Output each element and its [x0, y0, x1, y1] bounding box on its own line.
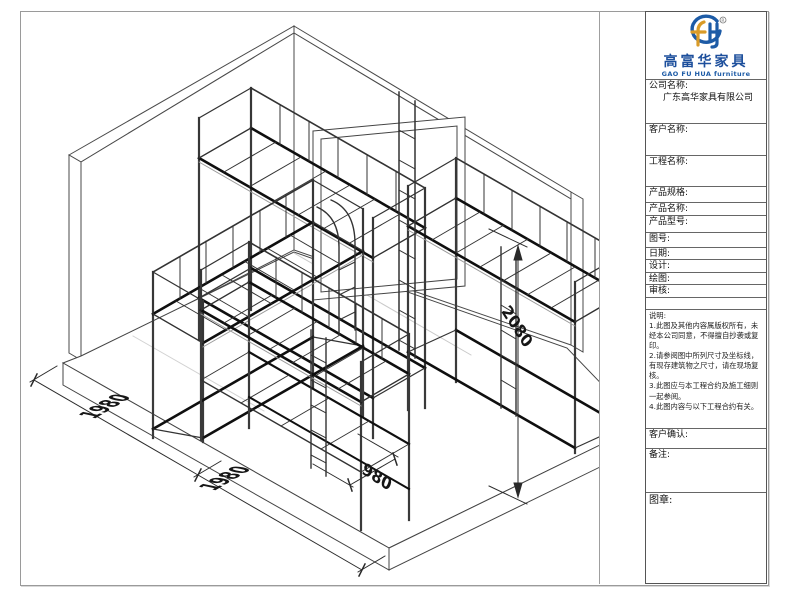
field-label: 客户确认: [649, 430, 763, 442]
drawing-sheet: 1980 1980 980 2080 R 高富华家具 GAO FU HUA fu… [0, 0, 800, 600]
tick [359, 564, 365, 576]
tick [31, 374, 37, 386]
note-item: 1.此图及其他内容属版权所有，未经本公司同意，不得擅自抄袭或复印。 [649, 321, 763, 351]
logo-english-name: GAO FU HUA furniture [649, 70, 763, 78]
field-label: 审核: [649, 286, 763, 298]
title-block: R 高富华家具 GAO FU HUA furniture 公司名称: 广东高华家… [645, 11, 767, 584]
right-wall-end-face [571, 192, 583, 352]
field-product-model: 产品型号: [646, 216, 766, 233]
notes-label: 说明: [649, 311, 763, 321]
field-label: 日期: [649, 249, 763, 260]
logo-chinese-name: 高富华家具 [649, 55, 763, 70]
drawing-area-divider [599, 11, 600, 584]
field-company-name: 公司名称: 广东高华家具有限公司 [646, 80, 766, 124]
field-label: 绘图: [649, 274, 763, 285]
field-label: 工程名称: [649, 157, 763, 169]
gfh-logo-icon: R [683, 14, 729, 50]
left-wall-end-face [69, 155, 81, 360]
field-drawing-number: 图号: [646, 233, 766, 248]
notes-section: 说明: 1.此图及其他内容属版权所有，未经本公司同意，不得擅自抄袭或复印。 2.… [646, 310, 766, 429]
remarks-section: 备注: [646, 449, 766, 493]
field-label: 公司名称: [649, 81, 763, 93]
field-draft: 绘图: [646, 273, 766, 285]
customer-confirm-section: 客户确认: [646, 429, 766, 449]
note-item: 2.请参阅图中所列尺寸及坐标线，有现存建筑物之尺寸，请在现场复核。 [649, 351, 763, 381]
field-audit: 审核: [646, 285, 766, 298]
field-label: 产品规格: [649, 188, 763, 200]
field-label: 设计: [649, 261, 763, 273]
field-label: 备注: [649, 450, 763, 462]
field-project-name: 工程名称: [646, 156, 766, 187]
field-product-spec: 产品规格: [646, 187, 766, 203]
company-logo: R 高富华家具 GAO FU HUA furniture [646, 12, 766, 80]
field-customer-name: 客户名称: [646, 124, 766, 156]
seal-section: 图章: [646, 493, 766, 583]
field-label: 图章: [649, 494, 763, 507]
isometric-drawing: 1980 1980 980 2080 [21, 12, 599, 584]
empty-row [646, 298, 766, 310]
field-label: 客户名称: [649, 125, 763, 137]
field-label: 图号: [649, 234, 763, 246]
svg-text:R: R [721, 18, 724, 24]
note-item: 3.此图应与本工程合约及施工细则一起参阅。 [649, 381, 763, 401]
field-value: 广东高华家具有限公司 [649, 93, 763, 104]
field-product-name: 产品名称: [646, 203, 766, 216]
field-date: 日期: [646, 248, 766, 260]
field-design: 设计: [646, 260, 766, 273]
field-label: 产品名称: [649, 204, 763, 216]
tick [195, 469, 201, 481]
note-item: 4.此图内容与以下工程合约有关。 [649, 402, 763, 412]
field-label: 产品型号: [649, 217, 763, 229]
